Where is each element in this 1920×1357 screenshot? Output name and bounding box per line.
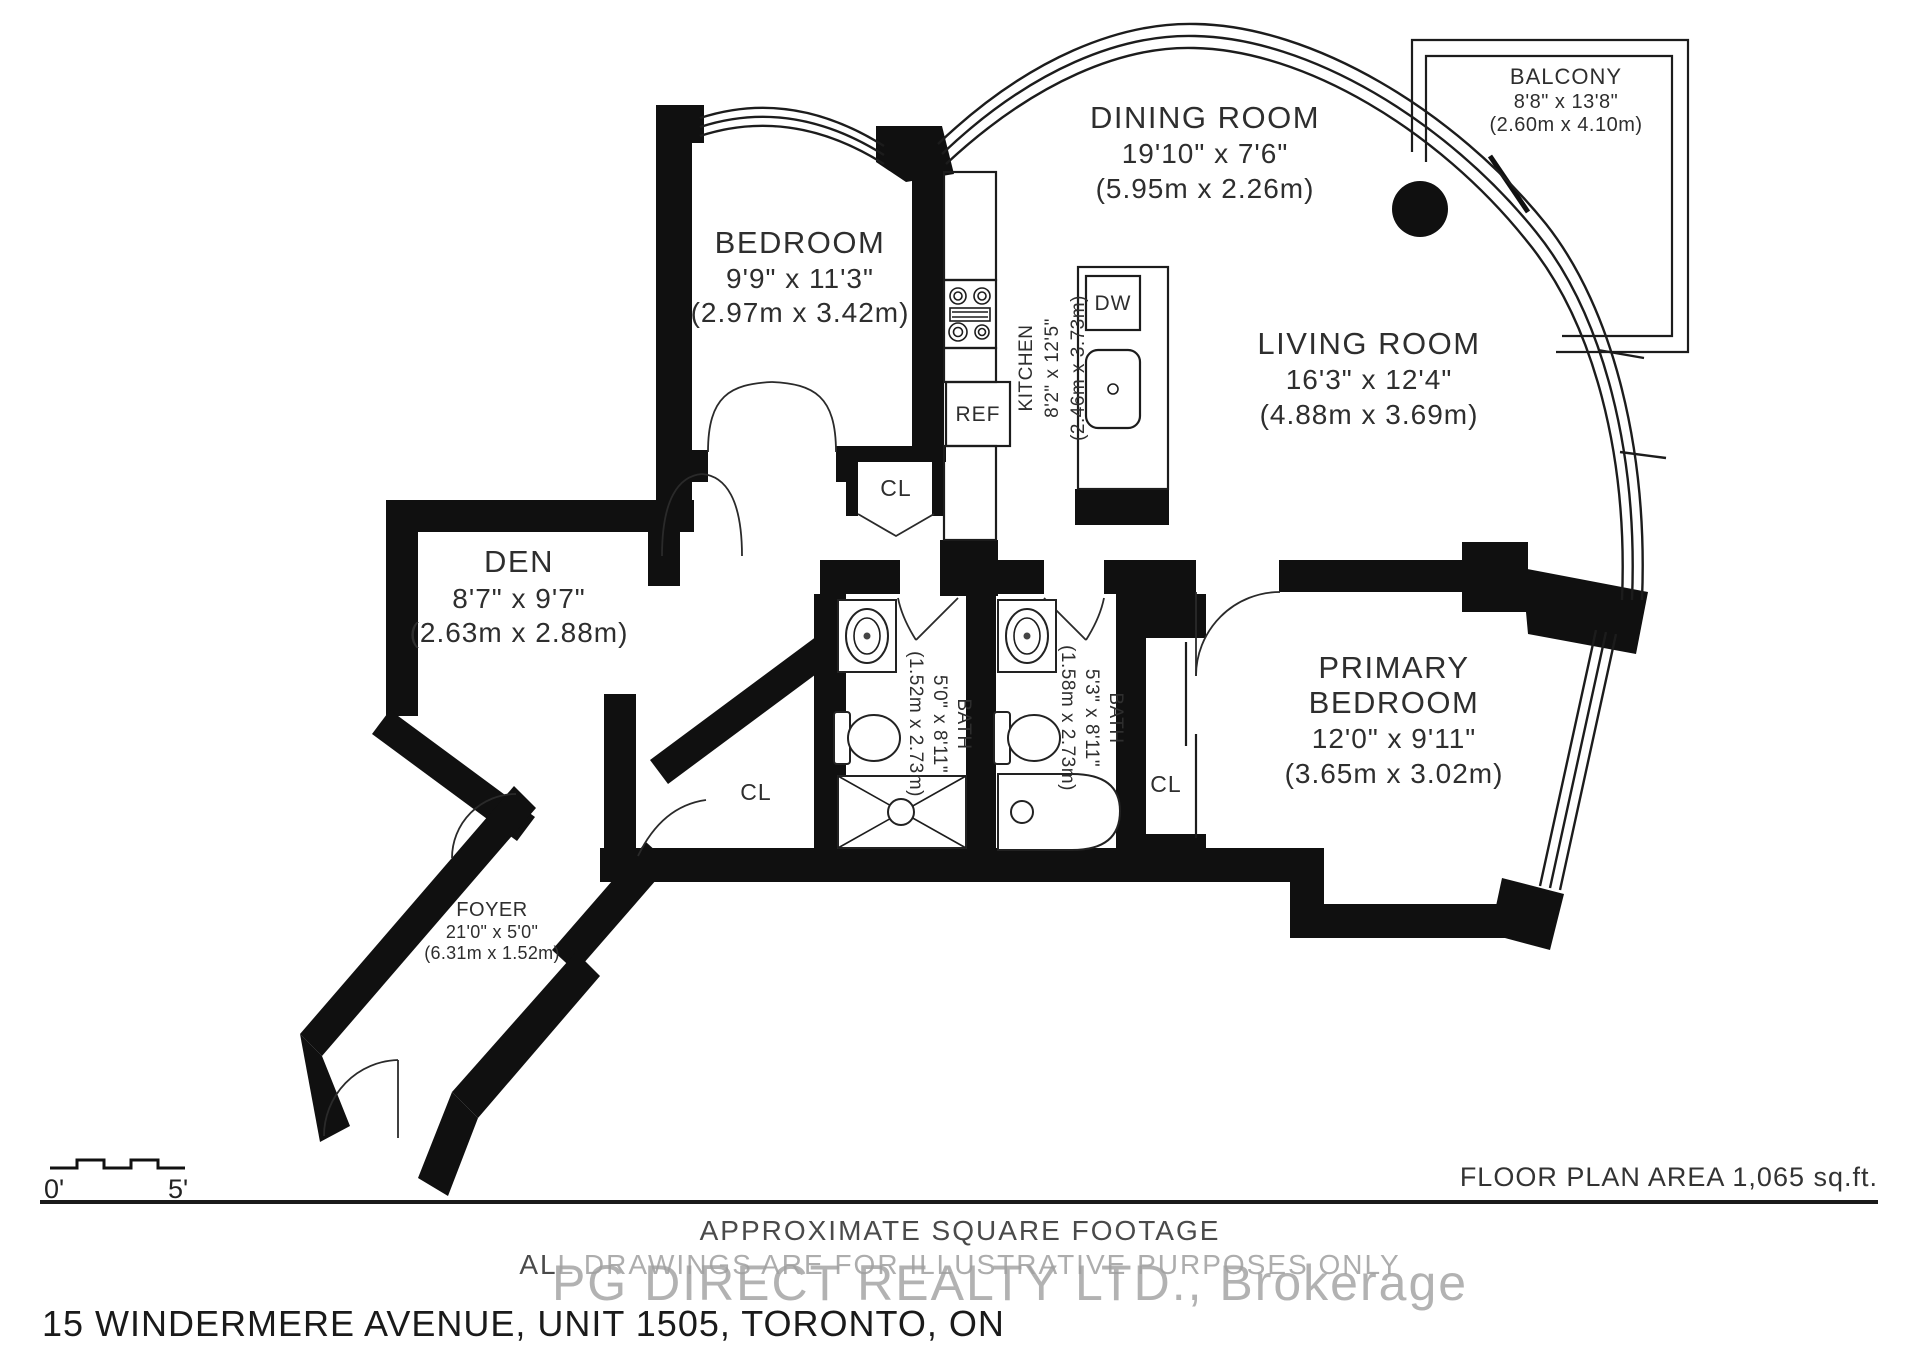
svg-text:21'0" x 5'0": 21'0" x 5'0" — [446, 922, 538, 942]
svg-text:(2.63m x 2.88m): (2.63m x 2.88m) — [410, 617, 629, 648]
svg-text:8'2" x 12'5": 8'2" x 12'5" — [1042, 318, 1063, 418]
svg-text:BATH: BATH — [1105, 692, 1126, 743]
svg-text:LIVING ROOM: LIVING ROOM — [1257, 326, 1480, 361]
room-label-balcony: BALCONY 8'8" x 13'8" (2.60m x 4.10m) — [1489, 64, 1642, 136]
scale-start-label: 0' — [44, 1174, 64, 1204]
room-label-primary: PRIMARY BEDROOM 12'0" x 9'11" (3.65m x 3… — [1285, 650, 1504, 789]
svg-text:(5.95m x 2.26m): (5.95m x 2.26m) — [1096, 173, 1315, 204]
room-label-dining: DINING ROOM 19'10" x 7'6" (5.95m x 2.26m… — [1090, 100, 1320, 204]
svg-text:BEDROOM: BEDROOM — [1309, 685, 1480, 720]
address-title: 15 WINDERMERE AVENUE, UNIT 1505, TORONTO… — [42, 1303, 1005, 1344]
svg-text:DEN: DEN — [484, 544, 554, 579]
floor-plan-svg: BEDROOM 9'9" x 11'3" (2.97m x 3.42m) DIN… — [0, 0, 1920, 1357]
room-label-bath2: BATH 5'3" x 8'11" (1.58m x 2.73m) — [1057, 645, 1126, 791]
room-label-living: LIVING ROOM 16'3" x 12'4" (4.88m x 3.69m… — [1257, 326, 1480, 430]
closet-label-hall: CL — [740, 779, 771, 805]
svg-text:(1.58m x 2.73m): (1.58m x 2.73m) — [1057, 645, 1078, 791]
closet-label-primary: CL — [1150, 771, 1181, 797]
svg-text:KITCHEN: KITCHEN — [1016, 325, 1037, 412]
svg-text:BEDROOM: BEDROOM — [715, 225, 886, 260]
svg-text:FOYER: FOYER — [456, 899, 527, 921]
floor-plan-page: BEDROOM 9'9" x 11'3" (2.97m x 3.42m) DIN… — [0, 0, 1920, 1357]
scale-end-label: 5' — [168, 1174, 188, 1204]
svg-text:(3.65m x 3.02m): (3.65m x 3.02m) — [1285, 758, 1504, 789]
room-label-den: DEN 8'7" x 9'7" (2.63m x 2.88m) — [410, 544, 629, 648]
svg-text:16'3" x 12'4": 16'3" x 12'4" — [1286, 364, 1453, 395]
svg-text:8'7" x 9'7": 8'7" x 9'7" — [452, 583, 585, 614]
scale-bar: 0' 5' — [44, 1160, 188, 1204]
refrigerator-label: REF — [956, 403, 1001, 426]
svg-text:(2.46m x 3.73m): (2.46m x 3.73m) — [1068, 295, 1089, 441]
closet-label-bedroom: CL — [880, 475, 911, 501]
svg-text:DINING ROOM: DINING ROOM — [1090, 100, 1320, 135]
svg-text:(6.31m x 1.52m): (6.31m x 1.52m) — [424, 943, 560, 963]
kitchen-sink-icon — [1086, 350, 1140, 428]
svg-text:(2.97m x 3.42m): (2.97m x 3.42m) — [691, 297, 910, 328]
svg-text:(1.52m x 2.73m): (1.52m x 2.73m) — [905, 651, 926, 797]
svg-text:(4.88m x 3.69m): (4.88m x 3.69m) — [1260, 399, 1479, 430]
svg-text:BALCONY: BALCONY — [1510, 64, 1622, 89]
svg-text:PRIMARY: PRIMARY — [1318, 650, 1469, 685]
column-dot — [1392, 181, 1448, 237]
room-label-kitchen: KITCHEN 8'2" x 12'5" (2.46m x 3.73m) — [1016, 295, 1089, 441]
floor-plan-area-label: FLOOR PLAN AREA 1,065 sq.ft. — [1460, 1162, 1878, 1192]
svg-text:5'3" x 8'11": 5'3" x 8'11" — [1081, 669, 1102, 767]
svg-text:19'10" x 7'6": 19'10" x 7'6" — [1122, 138, 1289, 169]
disclaimer-line1: APPROXIMATE SQUARE FOOTAGE — [700, 1215, 1221, 1246]
svg-text:(2.60m x 4.10m): (2.60m x 4.10m) — [1489, 114, 1642, 136]
dishwasher-label: DW — [1095, 292, 1132, 315]
svg-text:5'0" x 8'11": 5'0" x 8'11" — [929, 675, 950, 773]
svg-text:8'8" x 13'8": 8'8" x 13'8" — [1514, 91, 1619, 113]
svg-text:9'9" x 11'3": 9'9" x 11'3" — [726, 263, 874, 294]
svg-text:12'0" x 9'11": 12'0" x 9'11" — [1312, 723, 1476, 754]
room-label-bedroom: BEDROOM 9'9" x 11'3" (2.97m x 3.42m) — [691, 225, 910, 328]
svg-text:BATH: BATH — [953, 698, 974, 749]
